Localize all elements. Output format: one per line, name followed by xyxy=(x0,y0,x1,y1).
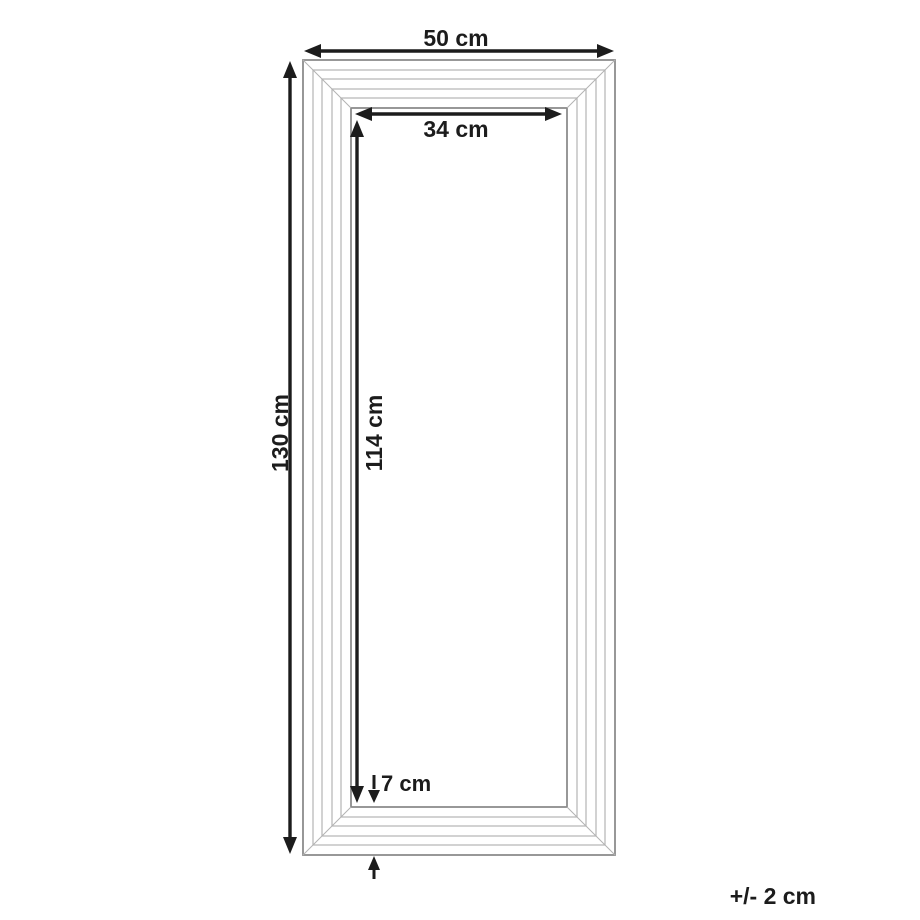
arrowhead-right-icon xyxy=(545,107,562,121)
arrowhead-left-icon xyxy=(355,107,372,121)
outer-height-dimension: 130 cm xyxy=(267,61,297,854)
arrowhead-up-icon xyxy=(350,120,364,137)
inner-width-label: 34 cm xyxy=(423,116,488,142)
frame-dimension-diagram: 50 cm 34 cm 130 cm 114 cm 7 cm +/- 2 cm xyxy=(0,0,920,920)
arrowhead-up-icon xyxy=(368,856,380,870)
arrowhead-down-icon xyxy=(350,786,364,803)
mirror-frame xyxy=(303,60,615,855)
frame-miter-top-left xyxy=(303,60,351,108)
outer-height-label: 130 cm xyxy=(267,394,293,472)
arrowhead-down-icon xyxy=(368,790,380,803)
frame-profile-dimension: 7 cm xyxy=(368,771,431,879)
arrowhead-right-icon xyxy=(597,44,614,58)
outer-width-label: 50 cm xyxy=(423,25,488,51)
frame-miter-top-right xyxy=(567,60,615,108)
frame-outer-edge xyxy=(303,60,615,855)
tolerance-note: +/- 2 cm xyxy=(730,883,816,909)
arrowhead-down-icon xyxy=(283,837,297,854)
inner-height-dimension: 114 cm xyxy=(350,120,387,803)
frame-profile-label: 7 cm xyxy=(381,771,431,796)
inner-width-dimension: 34 cm xyxy=(355,107,562,142)
frame-miter-bottom-left xyxy=(303,807,351,855)
arrowhead-up-icon xyxy=(283,61,297,78)
frame-miter-bottom-right xyxy=(567,807,615,855)
arrowhead-left-icon xyxy=(304,44,321,58)
inner-height-label: 114 cm xyxy=(361,395,387,472)
outer-width-dimension: 50 cm xyxy=(304,25,614,58)
